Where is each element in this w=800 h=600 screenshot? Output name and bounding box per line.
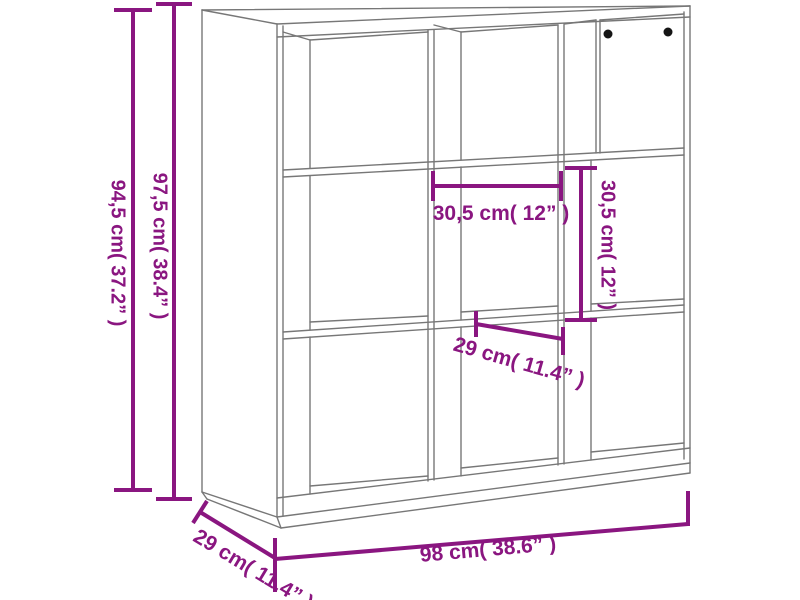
- dim-line-shelf-depth: [476, 324, 563, 339]
- dimension-label-inner-width: 30,5 cm( 12” ): [433, 202, 570, 226]
- dimension-label-height-total: 97,5 cm( 38.4” ): [148, 173, 171, 320]
- cabinet-interior-depth-lines: [283, 14, 684, 494]
- dimension-label-inner-height: 30,5 cm( 12” ): [596, 180, 619, 310]
- mounting-hole-dot: [664, 28, 673, 37]
- product-dimension-diagram: 94,5 cm( 37.2” ) 97,5 cm( 38.4” ) 30,5 c…: [0, 0, 800, 600]
- dimension-label-height-side: 94,5 cm( 37.2” ): [106, 180, 129, 327]
- mounting-hole-dot: [604, 30, 613, 39]
